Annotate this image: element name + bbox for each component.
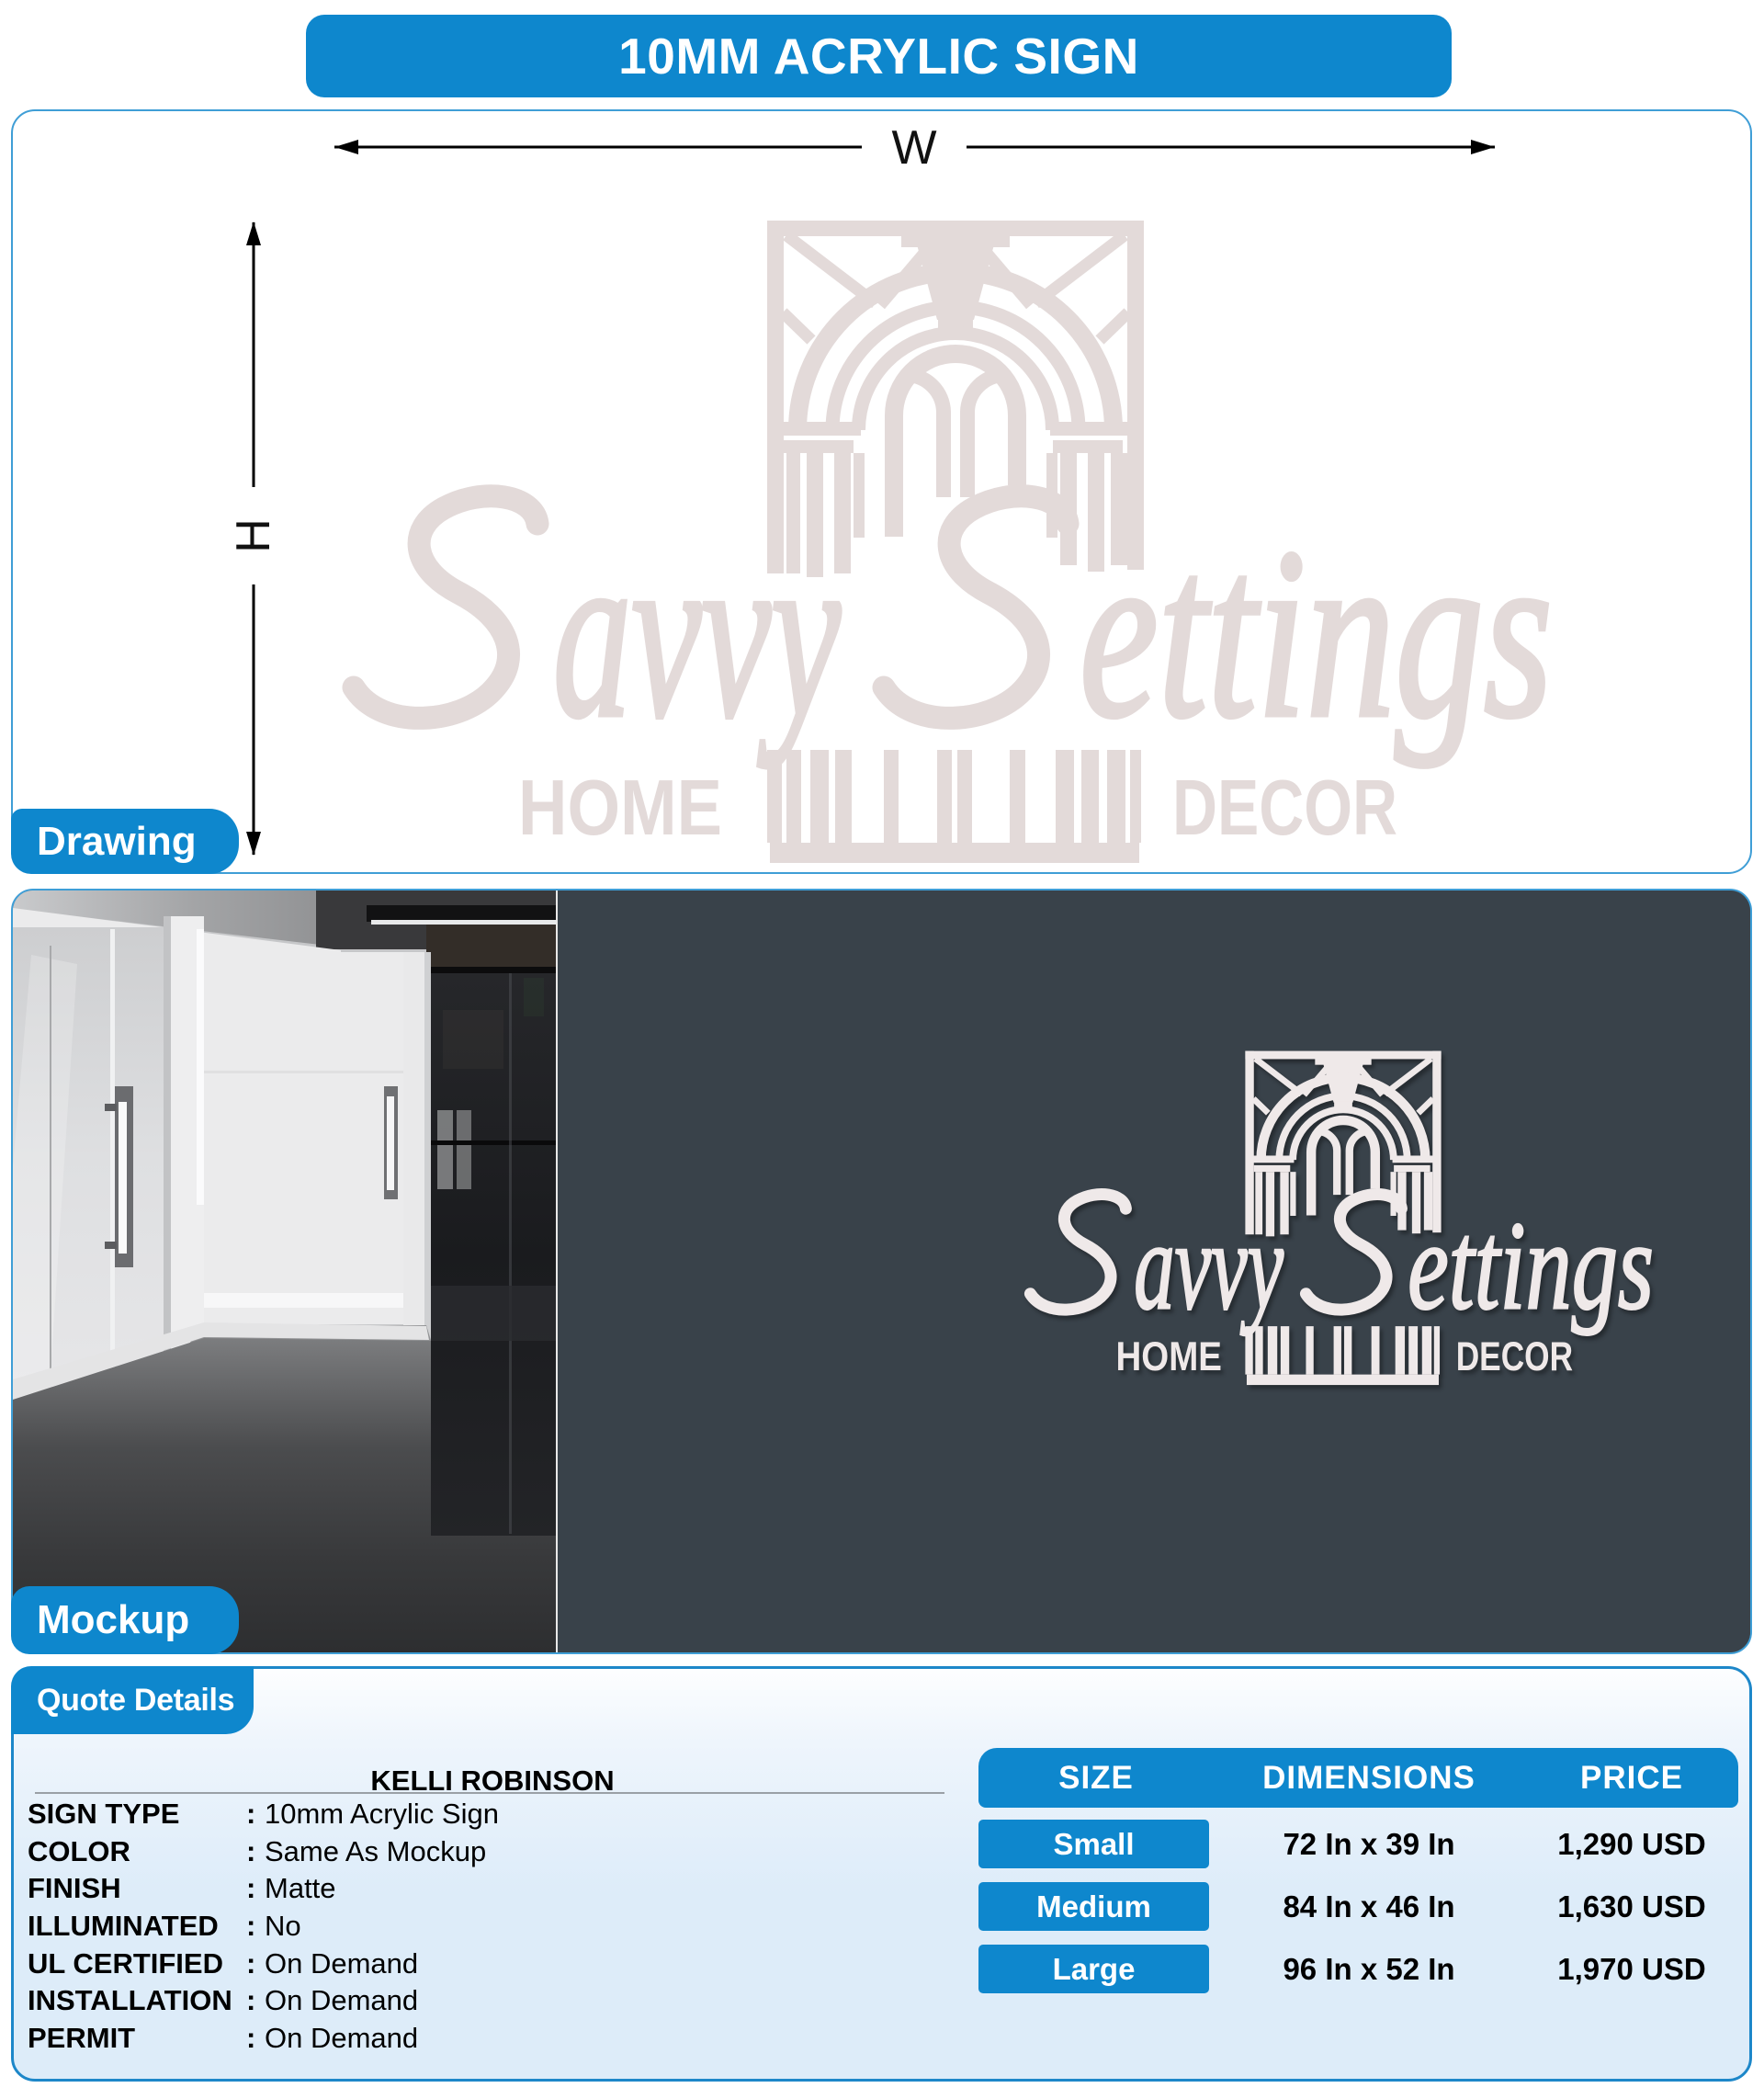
svg-text:H: H	[227, 518, 280, 553]
svg-text:W: W	[891, 129, 936, 165]
